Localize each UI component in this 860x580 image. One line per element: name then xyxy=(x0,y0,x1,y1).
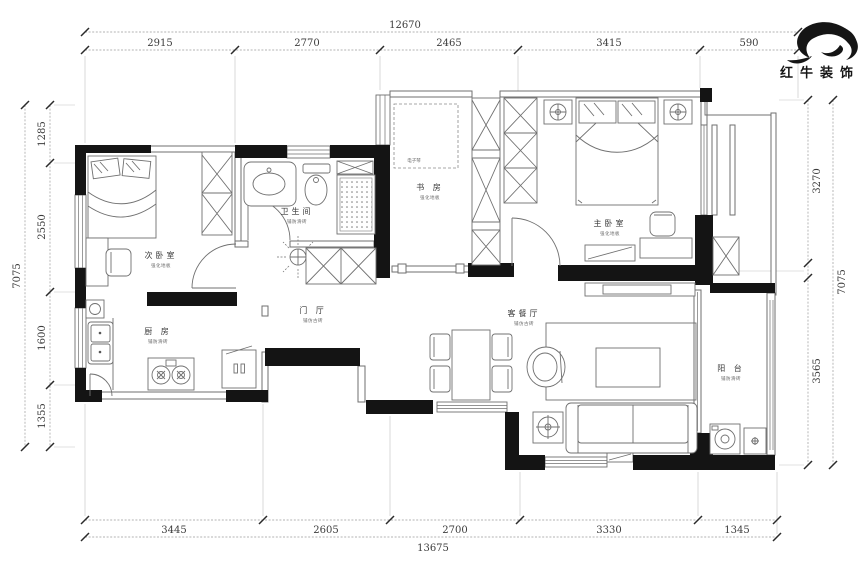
shoe-cabinet xyxy=(306,248,376,284)
brand-logo-text: 红牛装饰 xyxy=(780,65,860,81)
label-study-item: 电子琴 xyxy=(407,157,421,164)
note-living-dining: 铺仿古砖 xyxy=(514,320,534,327)
dim-right-total: 7075 xyxy=(837,269,848,294)
label-kitchen: 厨 房 xyxy=(144,326,172,336)
toilet xyxy=(303,164,330,205)
red-bull-logo-icon xyxy=(787,22,858,63)
label-master-bedroom: 主卧室 xyxy=(594,218,627,228)
fridge xyxy=(222,346,256,388)
nightstand-left xyxy=(544,100,572,124)
side-table-lamp xyxy=(533,412,563,443)
nightstand-right xyxy=(664,100,692,124)
dresser-master xyxy=(585,245,635,261)
dim-left-seg-2: 2550 xyxy=(37,214,48,239)
floorplan-drawing: 12670 2915 2770 2465 3415 590 3445 2605 … xyxy=(0,0,860,580)
label-bathroom: 卫生间 xyxy=(281,206,314,216)
dim-top-seg-2: 2770 xyxy=(294,38,319,49)
dim-right-seg-1: 3270 xyxy=(812,168,823,193)
stove xyxy=(148,358,194,390)
label-living-dining: 客餐厅 xyxy=(508,308,541,318)
coffee-table xyxy=(596,348,660,387)
bed-master xyxy=(576,98,658,205)
bed-secondary xyxy=(88,156,156,238)
dim-bottom-seg-1: 3445 xyxy=(161,525,186,536)
mop-sink xyxy=(744,428,766,454)
dim-bottom-seg-4: 3330 xyxy=(596,525,621,536)
dim-top-total: 12670 xyxy=(389,20,421,31)
dim-top-seg-4: 3415 xyxy=(596,38,621,49)
dim-bottom-seg-5: 1345 xyxy=(724,525,749,536)
dim-top-seg-5: 590 xyxy=(739,38,758,49)
label-hallway: 门 厅 xyxy=(299,305,327,315)
label-secondary-bedroom: 次卧室 xyxy=(145,250,178,260)
dim-left-seg-1: 1285 xyxy=(37,121,48,146)
dining-table xyxy=(430,330,512,400)
note-secondary-bedroom: 强化地板 xyxy=(151,262,171,269)
wardrobe-secondary xyxy=(202,152,232,235)
note-master-bedroom: 强化地板 xyxy=(600,230,620,237)
tv-cabinet xyxy=(585,283,695,296)
note-study: 强化地板 xyxy=(420,194,440,201)
study-dashed-item xyxy=(394,104,458,168)
dim-top-seg-1: 2915 xyxy=(147,38,172,49)
washing-machine xyxy=(710,424,740,454)
wardrobe-study xyxy=(472,98,500,265)
label-balcony: 阳 台 xyxy=(717,363,745,373)
dim-bottom-seg-2: 2605 xyxy=(313,525,338,536)
desk-chair-master xyxy=(640,212,692,258)
dim-left-seg-4: 1355 xyxy=(37,403,48,428)
dim-left-total: 7075 xyxy=(12,263,23,288)
dim-left-seg-3: 1600 xyxy=(37,325,48,350)
door-secondary-bedroom xyxy=(192,244,236,288)
ac-unit xyxy=(713,237,739,275)
dim-top-seg-3: 2465 xyxy=(436,38,461,49)
door-master-bedroom xyxy=(512,218,560,266)
dim-right-seg-2: 3565 xyxy=(812,358,823,383)
sofa xyxy=(566,403,697,453)
armchair xyxy=(527,347,565,387)
note-bathroom: 铺防滑砖 xyxy=(287,218,307,225)
brand-logo: 红牛装饰 xyxy=(780,22,860,81)
dim-bottom-seg-3: 2700 xyxy=(442,525,467,536)
note-balcony: 铺防滑砖 xyxy=(721,375,741,382)
note-hallway: 铺仿古砖 xyxy=(303,317,323,324)
kitchen-sink xyxy=(88,318,113,390)
bathroom-sink xyxy=(244,162,296,206)
water-heater xyxy=(86,300,104,318)
shower-area xyxy=(337,161,375,234)
floorplan-canvas: 12670 2915 2770 2465 3415 590 3445 2605 … xyxy=(0,0,860,580)
desk-secondary xyxy=(86,238,131,286)
label-study: 书 房 xyxy=(416,182,444,192)
wardrobe-master xyxy=(504,98,537,203)
dim-bottom-total: 13675 xyxy=(417,543,449,554)
note-kitchen: 铺防滑砖 xyxy=(148,338,168,345)
